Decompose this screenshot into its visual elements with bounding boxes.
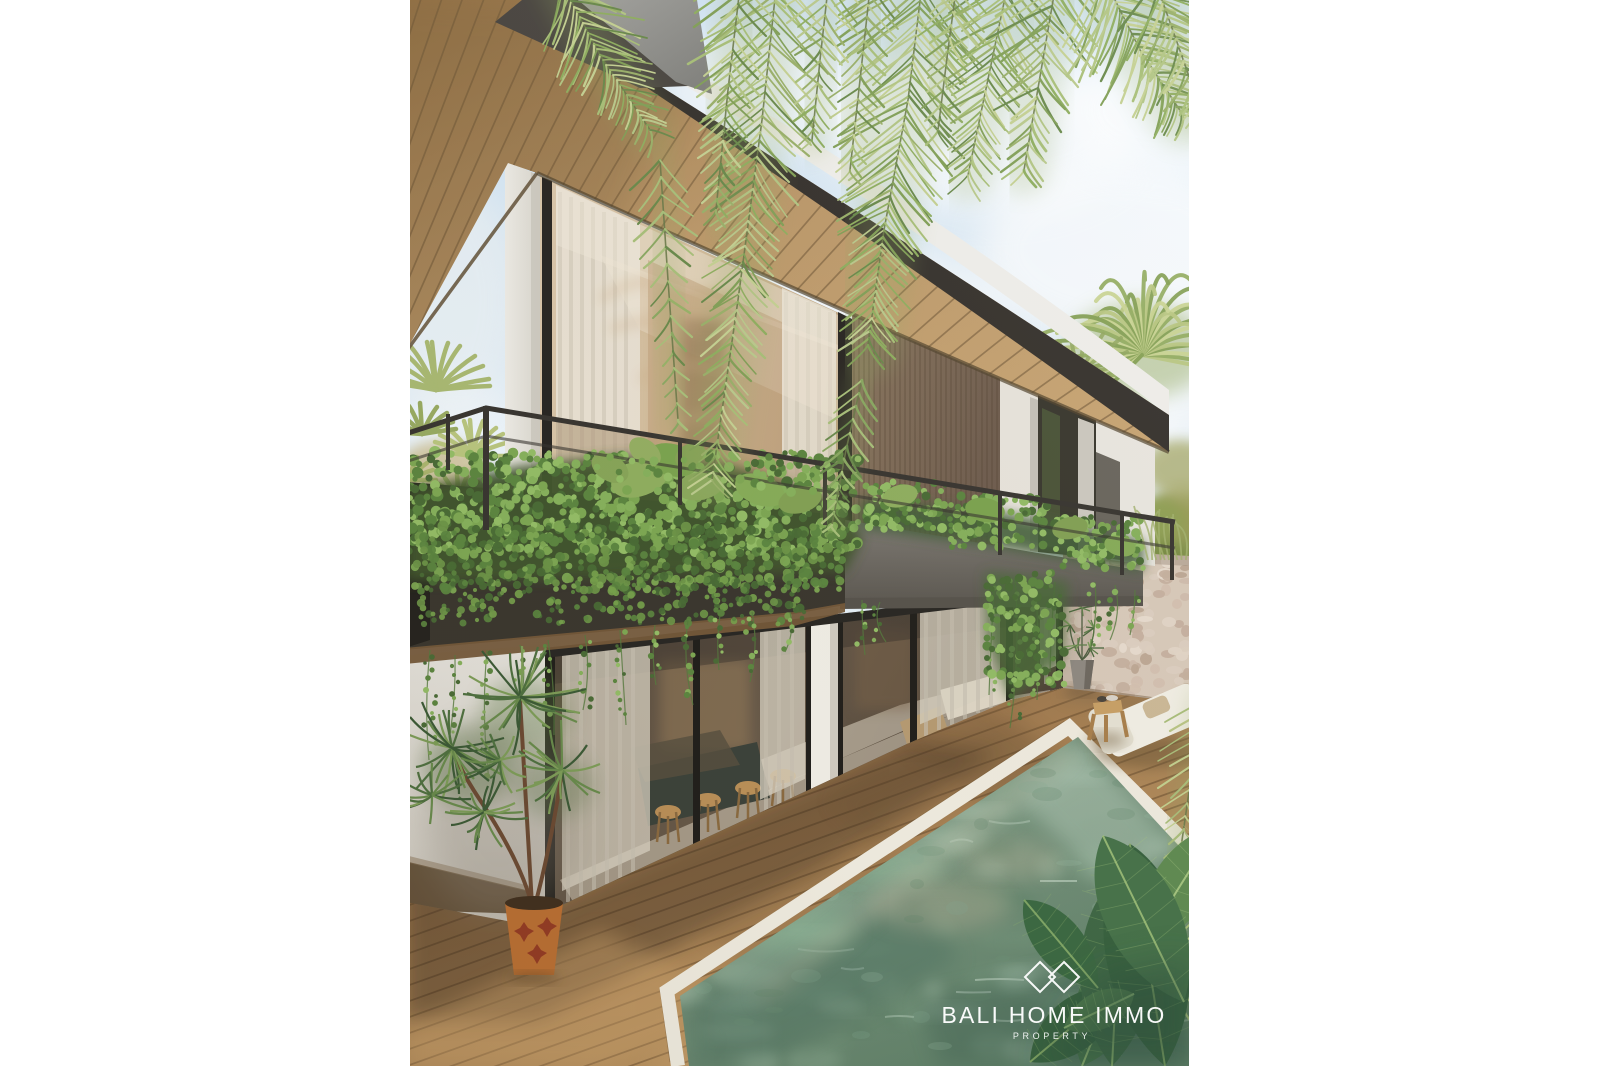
svg-text:BALI HOME IMMO: BALI HOME IMMO <box>941 1002 1166 1028</box>
svg-text:PROPERTY: PROPERTY <box>1013 1031 1091 1041</box>
